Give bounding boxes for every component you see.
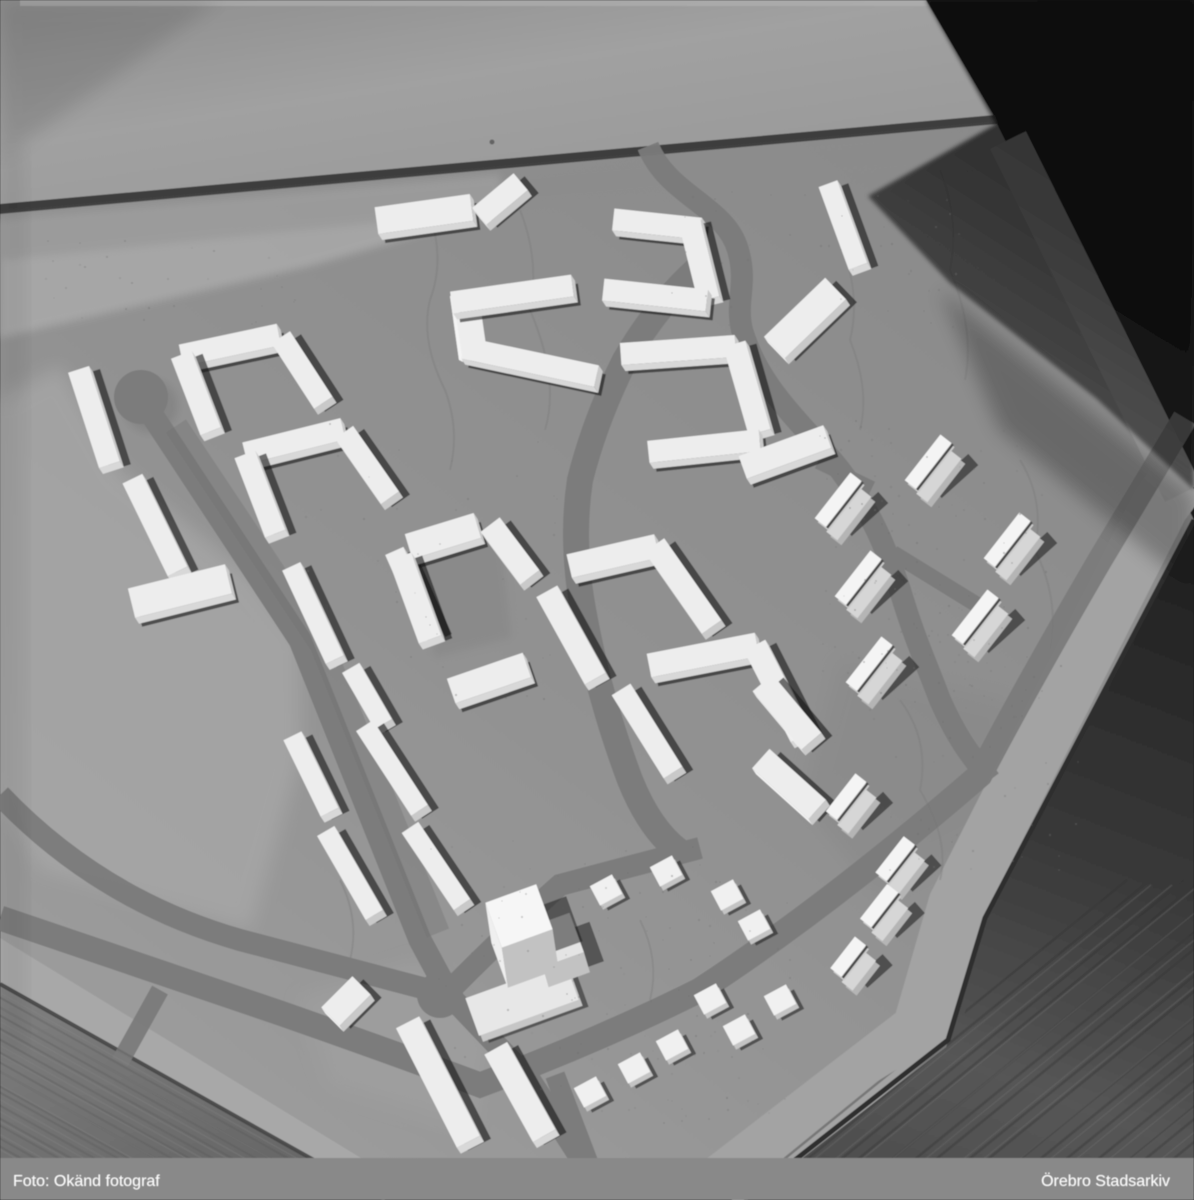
svg-text:Foto: Okänd fotograf: Foto: Okänd fotograf — [13, 1173, 160, 1190]
svg-text:Örebro Stadsarkiv: Örebro Stadsarkiv — [1041, 1172, 1170, 1190]
